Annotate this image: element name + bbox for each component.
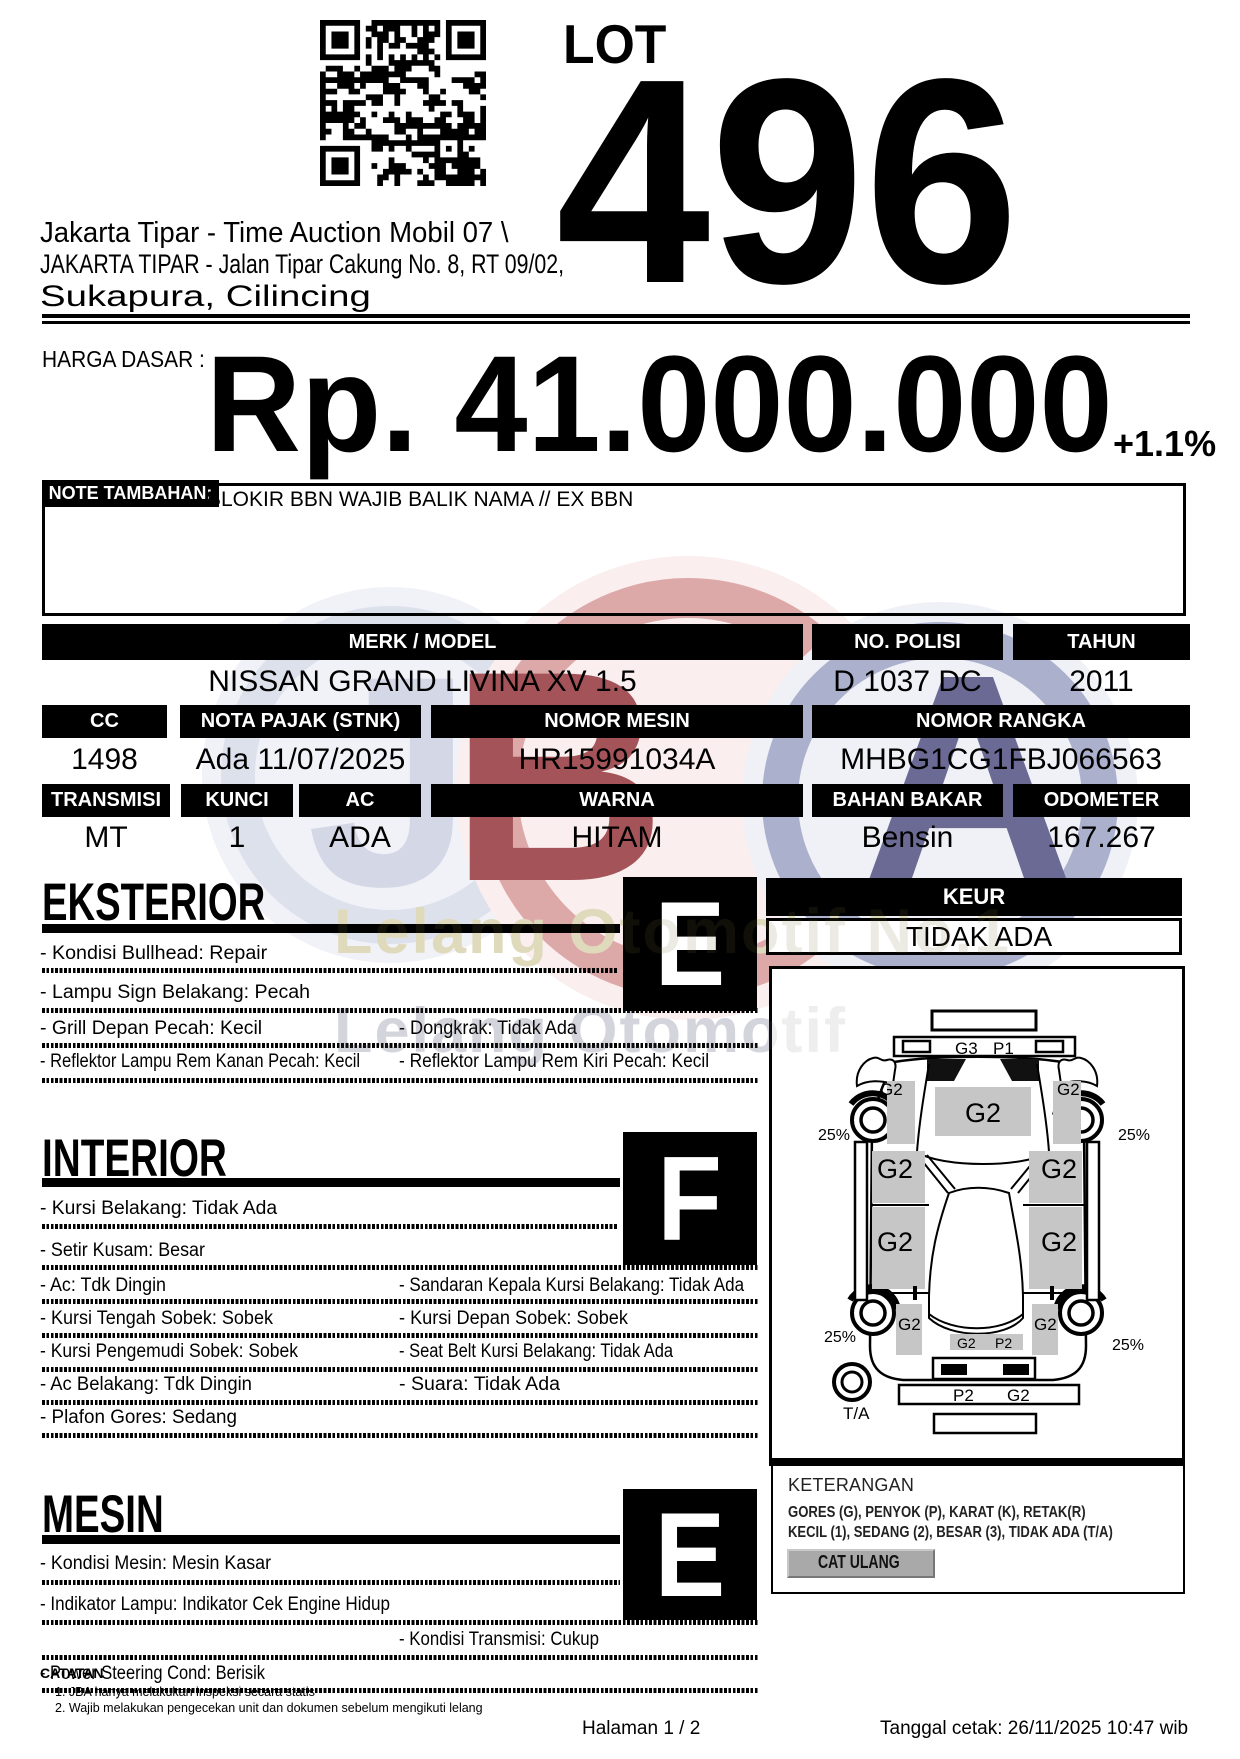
svg-text:25%: 25% [818,1127,850,1144]
svg-text:P1: P1 [993,1039,1014,1058]
svg-text:G2: G2 [1007,1386,1030,1405]
svg-text:G2: G2 [877,1227,913,1257]
svg-text:G2: G2 [898,1315,921,1334]
svg-text:P2: P2 [953,1386,974,1405]
svg-text:G2: G2 [1041,1154,1077,1184]
svg-text:25%: 25% [1112,1337,1144,1354]
svg-text:T/A: T/A [843,1404,870,1423]
svg-text:G2: G2 [877,1154,913,1184]
svg-text:G2: G2 [957,1335,976,1351]
svg-text:G3: G3 [955,1039,978,1058]
svg-text:G2: G2 [965,1098,1001,1128]
svg-text:P2: P2 [995,1335,1012,1351]
svg-text:25%: 25% [1118,1127,1150,1144]
svg-text:G2: G2 [1034,1315,1057,1334]
svg-text:G2: G2 [1057,1080,1080,1099]
svg-text:G2: G2 [1041,1227,1077,1257]
svg-text:25%: 25% [824,1329,856,1346]
svg-text:G2: G2 [880,1080,903,1099]
svg-text:J: J [307,613,474,949]
